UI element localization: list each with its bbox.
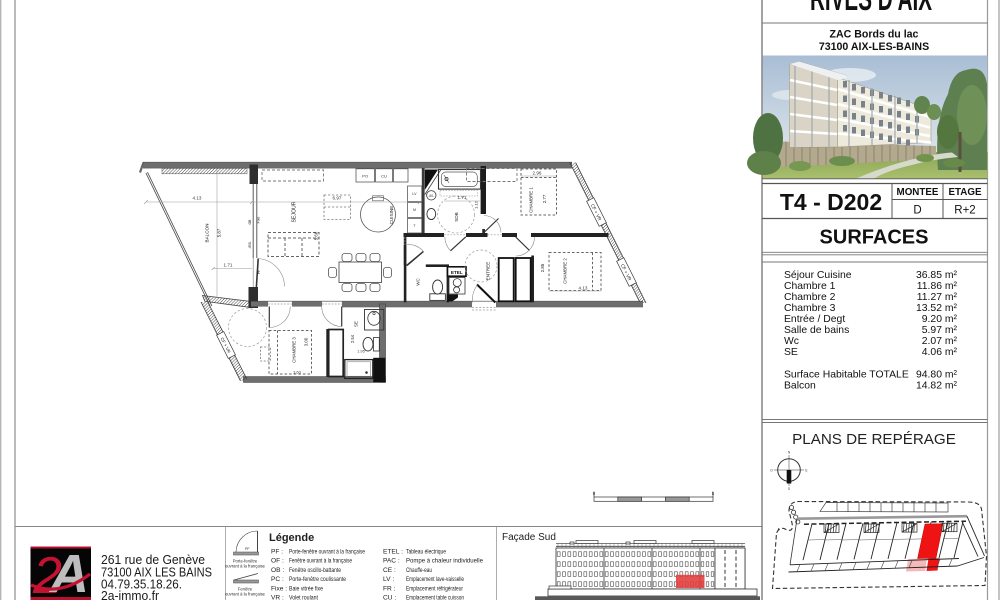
svg-text:PF :: PF : (271, 549, 283, 556)
svg-text:1.95: 1.95 (357, 349, 366, 354)
svg-text:PC :: PC : (271, 576, 284, 583)
svg-text:OB :: OB : (271, 567, 284, 574)
svg-text:2.07 m²: 2.07 m² (922, 336, 958, 347)
svg-text:PAC :: PAC : (383, 558, 400, 565)
svg-text:9.20 m²: 9.20 m² (922, 314, 958, 325)
svg-text:5.60: 5.60 (314, 231, 319, 240)
svg-text:Chambre 2: Chambre 2 (784, 292, 836, 303)
svg-text:Salle de bains: Salle de bains (784, 325, 849, 336)
svg-text:Fixe :: Fixe : (271, 585, 287, 592)
svg-text:2a-immo.fr: 2a-immo.fr (101, 588, 160, 600)
svg-text:1.71: 1.71 (458, 195, 467, 200)
svg-text:Façade Sud: Façade Sud (502, 532, 556, 543)
svg-text:3.00: 3.00 (304, 337, 309, 346)
svg-text:4.13: 4.13 (193, 196, 202, 201)
svg-text:Emplacement réfrigérateur: Emplacement réfrigérateur (406, 585, 464, 592)
svg-text:SURFACES: SURFACES (820, 227, 929, 249)
svg-text:Légende: Légende (269, 532, 314, 544)
svg-text:Balcon: Balcon (784, 381, 816, 392)
svg-text:R+2: R+2 (954, 205, 975, 217)
svg-text:36.85 m²: 36.85 m² (916, 270, 958, 281)
svg-text:6.97: 6.97 (333, 196, 342, 201)
svg-text:Séjour Cuisine: Séjour Cuisine (784, 270, 852, 281)
svg-text:A: A (48, 544, 89, 600)
svg-text:Volet roulant: Volet roulant (289, 595, 318, 600)
svg-text:3.60: 3.60 (293, 370, 302, 375)
svg-text:Chauffe-eau: Chauffe-eau (406, 567, 432, 574)
svg-text:Emplacement table cuisson: Emplacement table cuisson (406, 595, 464, 600)
svg-text:ZAC Bords du lac: ZAC Bords du lac (830, 29, 919, 41)
svg-text:2.85: 2.85 (540, 263, 545, 272)
svg-text:2.77: 2.77 (542, 194, 547, 203)
svg-text:Baie vitrée fixe: Baie vitrée fixe (289, 585, 323, 592)
svg-text:13.52 m²: 13.52 m² (916, 303, 958, 314)
svg-text:4.13: 4.13 (579, 286, 588, 291)
svg-text:WC: WC (416, 278, 421, 285)
svg-text:2.96: 2.96 (533, 171, 542, 176)
svg-text:FR :: FR : (383, 585, 396, 592)
svg-text:ouvrant à la française: ouvrant à la française (225, 564, 266, 569)
svg-text:Surface Habitable TOTALE: Surface Habitable TOTALE (784, 370, 909, 381)
svg-text:PF: PF (257, 270, 261, 274)
svg-text:Tableau électrique: Tableau électrique (406, 549, 446, 556)
svg-text:Chambre 1: Chambre 1 (784, 281, 836, 292)
svg-text:Porte-fenêtre ouvrant à la fra: Porte-fenêtre ouvrant à la française (289, 549, 365, 556)
svg-text:Chambre 3: Chambre 3 (784, 303, 836, 314)
svg-text:RIVES D'AIX: RIVES D'AIX (810, 0, 932, 18)
svg-text:11.27 m²: 11.27 m² (917, 292, 958, 303)
svg-text:Wc: Wc (784, 336, 799, 347)
svg-text:SEJOUR: SEJOUR (292, 201, 298, 222)
svg-text:MONTEE: MONTEE (897, 187, 939, 198)
svg-text:OB: OB (248, 219, 252, 225)
svg-text:73100 AIX-LES-BAINS: 73100 AIX-LES-BAINS (819, 41, 929, 53)
svg-text:D: D (913, 205, 921, 217)
svg-text:SE: SE (354, 321, 359, 327)
svg-text:ETEL :: ETEL : (383, 549, 403, 556)
svg-text:CUISINE: CUISINE (389, 206, 394, 225)
svg-text:Emplacement lave-vaisselle: Emplacement lave-vaisselle (406, 576, 464, 583)
svg-text:94.80 m²: 94.80 m² (916, 370, 958, 381)
svg-text:CHAMBRE 3: CHAMBRE 3 (292, 337, 297, 363)
svg-text:4.06 m²: 4.06 m² (922, 347, 958, 358)
svg-text:CHAMBRE 1: CHAMBRE 1 (529, 187, 534, 213)
svg-text:Fenêtre oscillo-battante: Fenêtre oscillo-battante (289, 567, 341, 574)
svg-text:SE: SE (784, 347, 798, 358)
svg-text:1.71: 1.71 (224, 263, 233, 268)
svg-text:LV: LV (412, 192, 417, 196)
svg-text:11.86 m²: 11.86 m² (917, 281, 958, 292)
svg-text:PLANS DE REPÉRAGE: PLANS DE REPÉRAGE (792, 431, 956, 448)
svg-text:ETEL: ETEL (451, 270, 463, 275)
svg-text:E: E (805, 469, 807, 473)
svg-text:-850-: -850- (248, 241, 252, 248)
svg-text:CE :: CE : (383, 567, 396, 574)
svg-text:VR :: VR : (271, 595, 284, 600)
svg-text:ouvrant à la française: ouvrant à la française (225, 592, 266, 597)
svg-text:OF :: OF : (271, 558, 284, 565)
svg-text:PO: PO (362, 174, 368, 179)
svg-text:PF: PF (245, 547, 250, 551)
svg-text:CHAMBRE 2: CHAMBRE 2 (563, 258, 568, 284)
svg-text:Fixe: Fixe (257, 217, 261, 224)
svg-text:14.82 m²: 14.82 m² (916, 381, 958, 392)
svg-text:5.97 m²: 5.97 m² (922, 325, 958, 336)
svg-text:S: S (788, 487, 790, 491)
svg-text:M: M (413, 208, 416, 212)
svg-text:1.12: 1.12 (474, 200, 479, 209)
svg-text:2.54: 2.54 (350, 334, 355, 343)
svg-text:ENTREE: ENTREE (486, 262, 491, 281)
svg-text:Entrée / Degt: Entrée / Degt (784, 314, 845, 325)
svg-text:T4 - D202: T4 - D202 (780, 189, 882, 215)
svg-text:CU: CU (381, 174, 387, 179)
svg-text:SDB: SDB (454, 212, 459, 221)
svg-text:ETAGE: ETAGE (948, 187, 981, 198)
svg-text:BALCON: BALCON (205, 224, 210, 243)
svg-text:Porte-fenêtre coulissante: Porte-fenêtre coulissante (289, 576, 346, 583)
svg-text:CU :: CU : (383, 595, 396, 600)
svg-text:LV :: LV : (383, 576, 394, 583)
svg-text:Pompe à chaleur individuelle: Pompe à chaleur individuelle (406, 558, 483, 565)
svg-text:Fenêtre ouvrant à la française: Fenêtre ouvrant à la française (289, 558, 352, 565)
svg-text:-60-: -60- (428, 194, 434, 198)
